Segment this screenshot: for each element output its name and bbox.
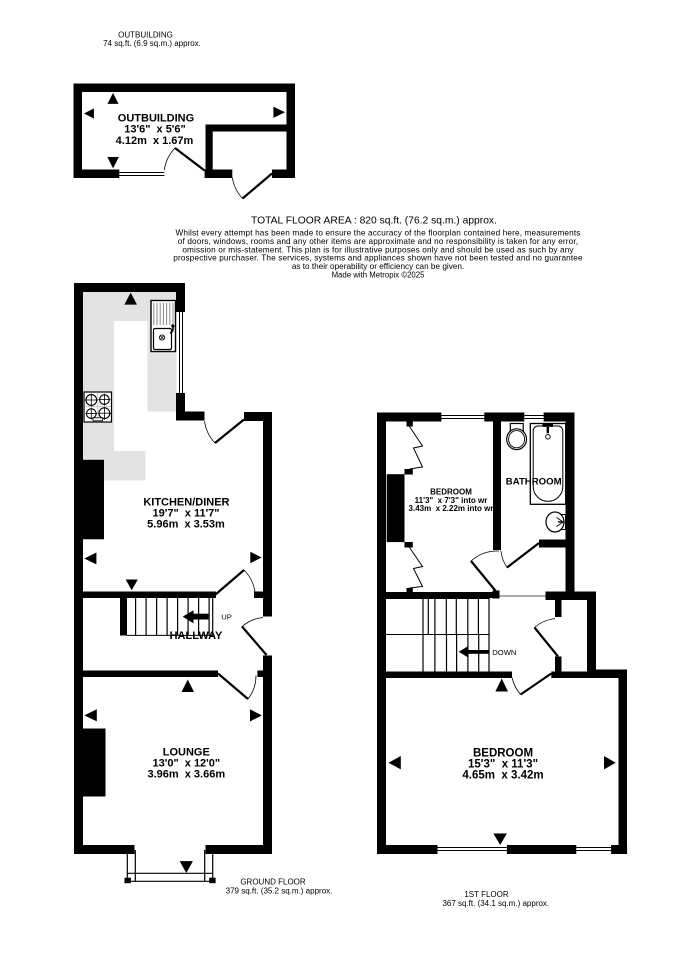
svg-text:367 sq.ft. (34.1 sq.m.) approx: 367 sq.ft. (34.1 sq.m.) approx. (442, 899, 549, 908)
svg-text:GROUND FLOOR: GROUND FLOOR (240, 878, 306, 887)
svg-text:4.12m x 1.67m: 4.12m x 1.67m (116, 135, 194, 147)
svg-text:3.96m x 3.66m: 3.96m x 3.66m (147, 769, 225, 781)
svg-text:13'6" x 5'6": 13'6" x 5'6" (124, 124, 186, 136)
svg-text:TOTAL FLOOR AREA : 820 sq.ft.: TOTAL FLOOR AREA : 820 sq.ft. (76.2 sq.m… (251, 216, 497, 227)
svg-text:OUTBUILDING: OUTBUILDING (118, 112, 194, 124)
svg-text:UP: UP (221, 613, 232, 622)
svg-text:1ST FLOOR: 1ST FLOOR (464, 890, 509, 899)
svg-text:3.43m x 2.22m into wr: 3.43m x 2.22m into wr (409, 504, 494, 513)
svg-text:4.65m x 3.42m: 4.65m x 3.42m (462, 770, 543, 782)
svg-text:379 sq.ft. (35.2 sq.m.) approx: 379 sq.ft. (35.2 sq.m.) approx. (226, 887, 333, 896)
svg-text:Made with Metropix ©2025: Made with Metropix ©2025 (332, 270, 426, 279)
svg-text:5.96m x 3.53m: 5.96m x 3.53m (147, 519, 225, 531)
svg-text:74 sq.ft. (6.9 sq.m.) approx.: 74 sq.ft. (6.9 sq.m.) approx. (103, 39, 201, 48)
svg-text:HALLWAY: HALLWAY (170, 630, 223, 642)
svg-text:BATHROOM: BATHROOM (506, 477, 562, 488)
svg-text:DOWN: DOWN (492, 648, 516, 657)
